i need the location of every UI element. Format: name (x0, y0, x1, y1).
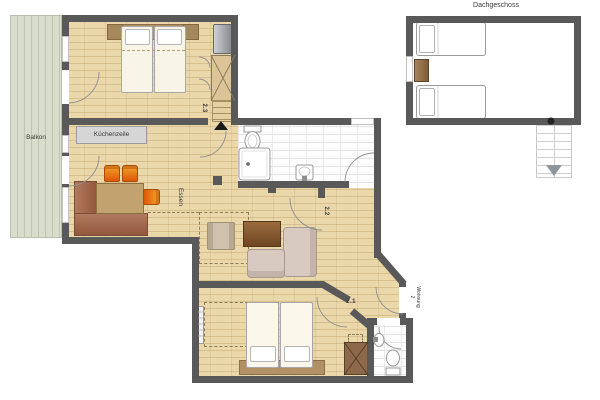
stairs-down-arrow (546, 165, 562, 176)
sink-wc (373, 334, 384, 347)
label-room-2-1: 2.1 (338, 298, 364, 305)
stair-newel-post (548, 118, 555, 125)
label-apartment-number: 2 (409, 280, 415, 314)
label-kitchenette: Küchenzeile (76, 131, 147, 138)
label-apartment: Wohnung 2 (408, 280, 420, 314)
label-dining: Essen (172, 182, 184, 212)
door-arc-balcony-dining (69, 156, 99, 186)
door-arc-balcony-bedroom1 (69, 72, 99, 103)
wall-diagonal-entry (377, 253, 404, 284)
label-attic: Dachgeschoss (448, 2, 544, 10)
label-apartment-name: Wohnung (415, 280, 421, 314)
wall-diagonal-wc (352, 311, 372, 328)
door-arc-bathroom (345, 153, 374, 182)
label-room-2-3: 2.3 (195, 96, 207, 120)
door-arc-entry (376, 287, 403, 314)
plan-detail-overlay (0, 0, 600, 400)
shower (239, 148, 270, 180)
label-balcony: Balkon (14, 134, 58, 141)
floor-plan: Dachgeschoss Balkon Küchenzeile Essen 2.… (0, 0, 600, 400)
sink-bathroom (296, 165, 313, 181)
door-arc-wardrobe-1 (199, 57, 210, 68)
toilet-bathroom (244, 126, 261, 151)
stairs-up-arrow (214, 121, 228, 130)
radiator-ticks (198, 312, 203, 336)
label-room-2-2: 2.2 (317, 199, 329, 223)
wardrobe-x-hall (344, 342, 368, 375)
door-arc-stair-hall (200, 131, 226, 157)
toilet-wc (386, 350, 400, 375)
wardrobe-x-bedroom1 (211, 55, 235, 101)
door-arc-wardrobe-2 (199, 79, 210, 90)
